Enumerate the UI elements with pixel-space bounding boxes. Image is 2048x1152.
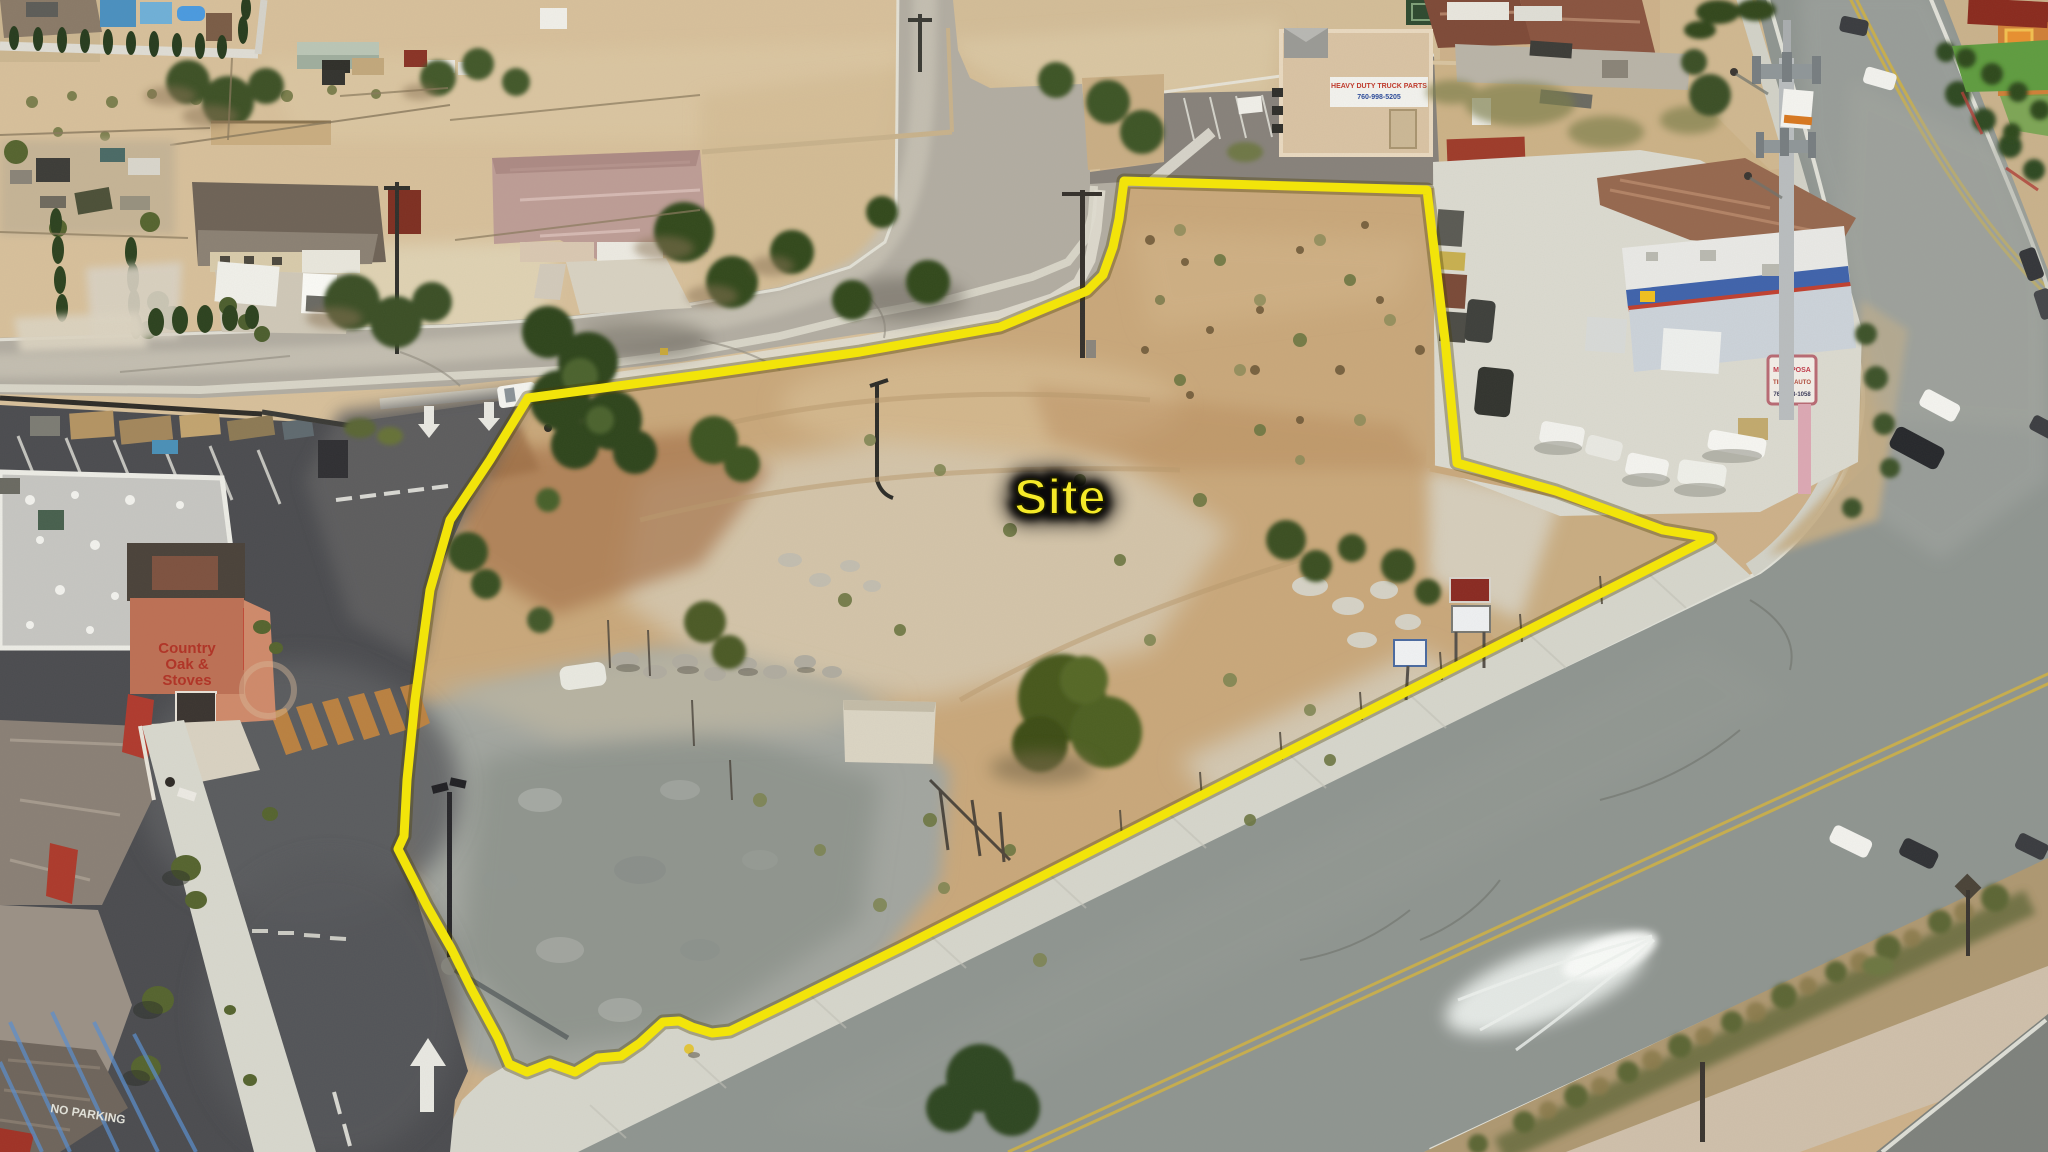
- svg-text:Site: Site: [1014, 469, 1106, 525]
